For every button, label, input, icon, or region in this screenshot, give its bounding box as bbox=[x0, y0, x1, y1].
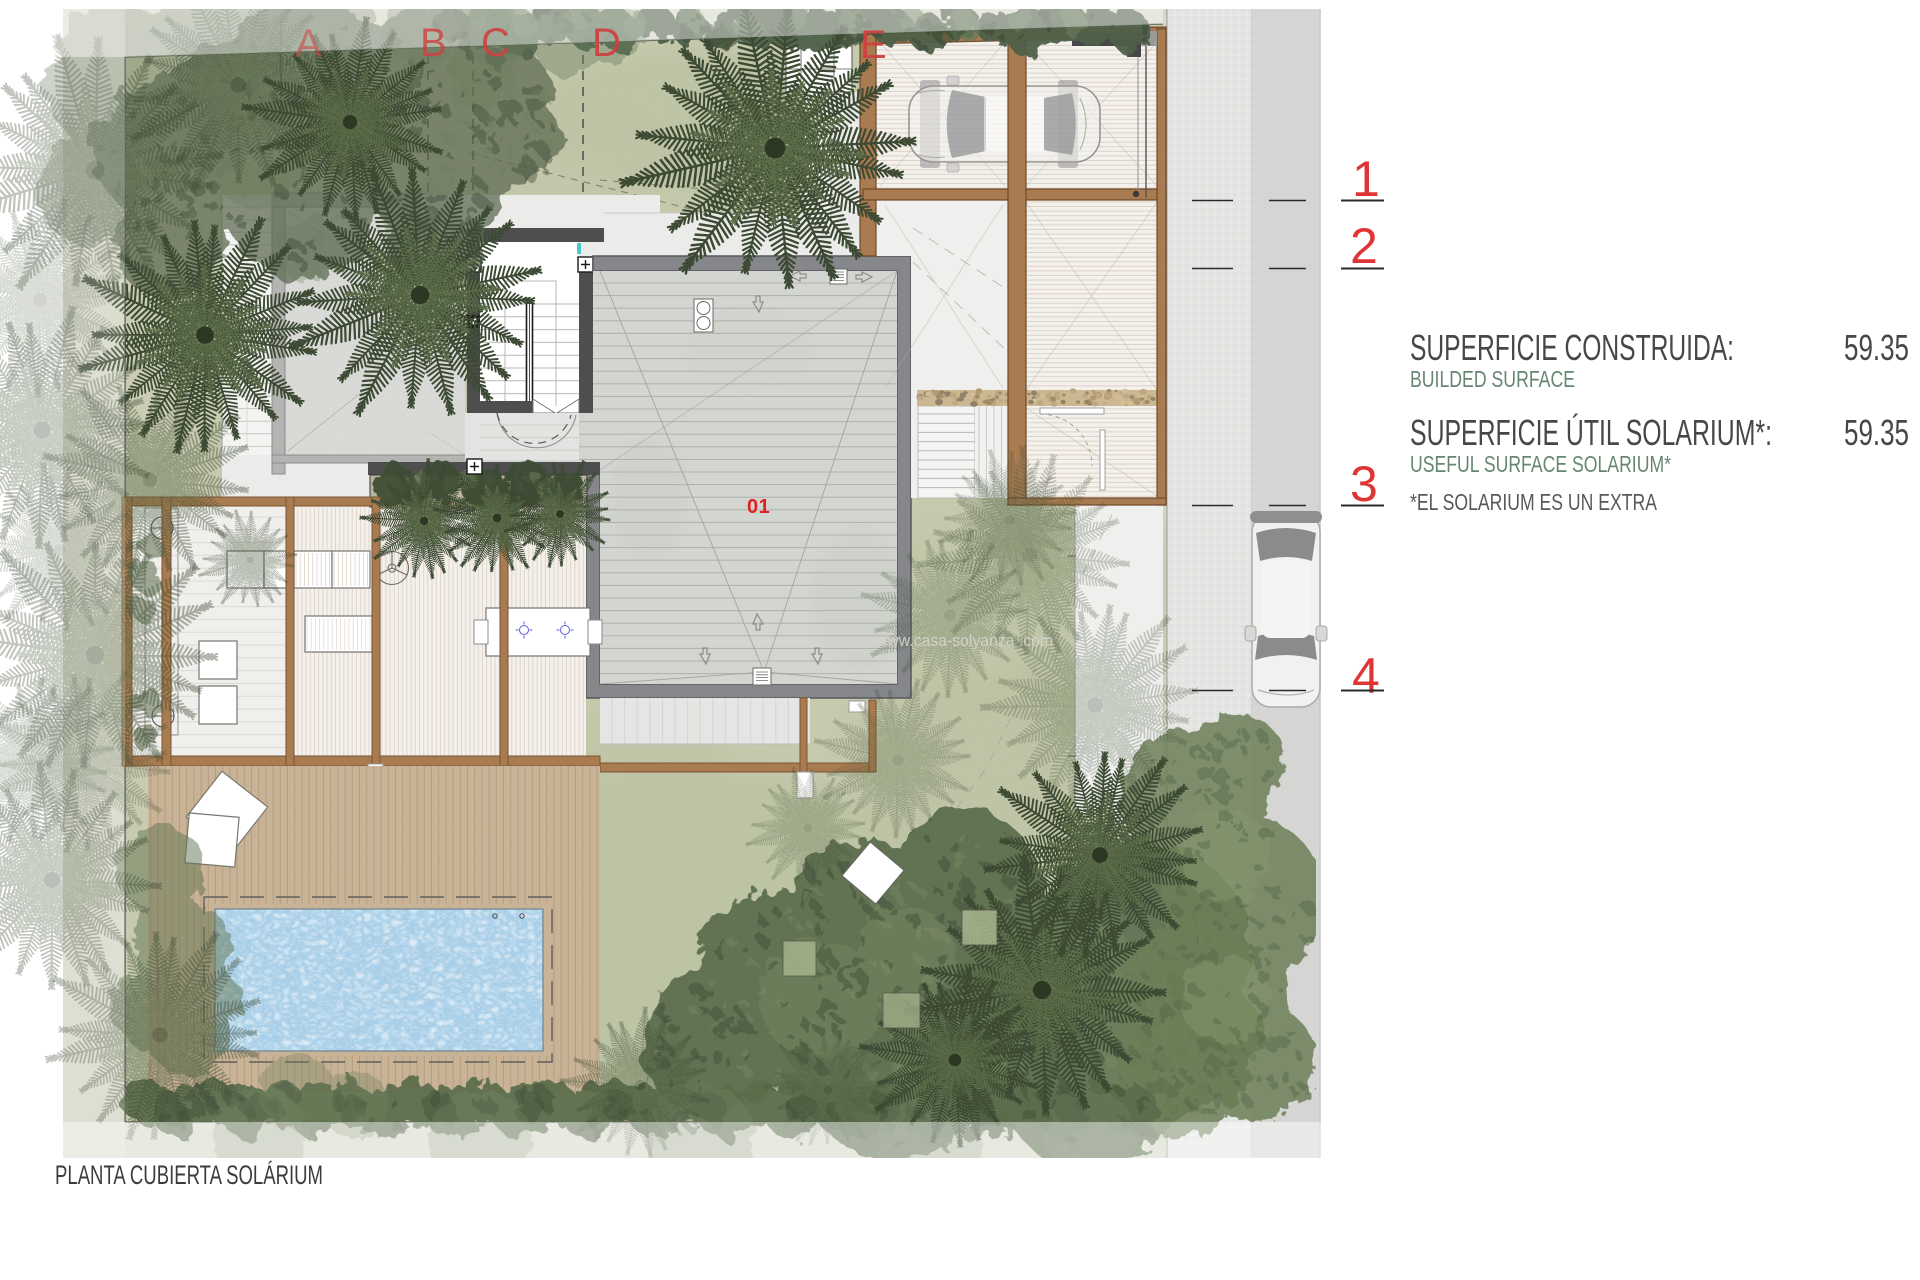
svg-text:E: E bbox=[860, 23, 887, 67]
svg-text:SUPERFICIE CONSTRUIDA:: SUPERFICIE CONSTRUIDA: bbox=[1410, 327, 1734, 368]
svg-text:2: 2 bbox=[1350, 218, 1378, 274]
svg-text:PLANTA CUBIERTA SOLÁRIUM: PLANTA CUBIERTA SOLÁRIUM bbox=[55, 1160, 323, 1190]
svg-text:4: 4 bbox=[1352, 648, 1380, 704]
svg-text:59.35: 59.35 bbox=[1844, 327, 1909, 368]
svg-text:59.35: 59.35 bbox=[1844, 412, 1909, 453]
svg-text:www.casa-solyanza .com: www.casa-solyanza .com bbox=[875, 631, 1053, 650]
svg-text:D: D bbox=[592, 21, 621, 65]
svg-text:3: 3 bbox=[1350, 456, 1378, 512]
svg-text:SUPERFICIE ÚTIL SOLARIUM*:: SUPERFICIE ÚTIL SOLARIUM*: bbox=[1410, 412, 1772, 453]
svg-text:01: 01 bbox=[747, 496, 770, 518]
svg-text:1: 1 bbox=[1352, 151, 1380, 207]
svg-text:B: B bbox=[420, 21, 447, 65]
svg-text:USEFUL SURFACE SOLARIUM*: USEFUL SURFACE SOLARIUM* bbox=[1410, 451, 1671, 477]
svg-text:C: C bbox=[481, 21, 510, 65]
svg-text:*EL SOLARIUM ES UN EXTRA: *EL SOLARIUM ES UN EXTRA bbox=[1410, 489, 1657, 515]
svg-text:BUILDED SURFACE: BUILDED SURFACE bbox=[1410, 366, 1575, 392]
svg-text:A: A bbox=[295, 22, 322, 66]
